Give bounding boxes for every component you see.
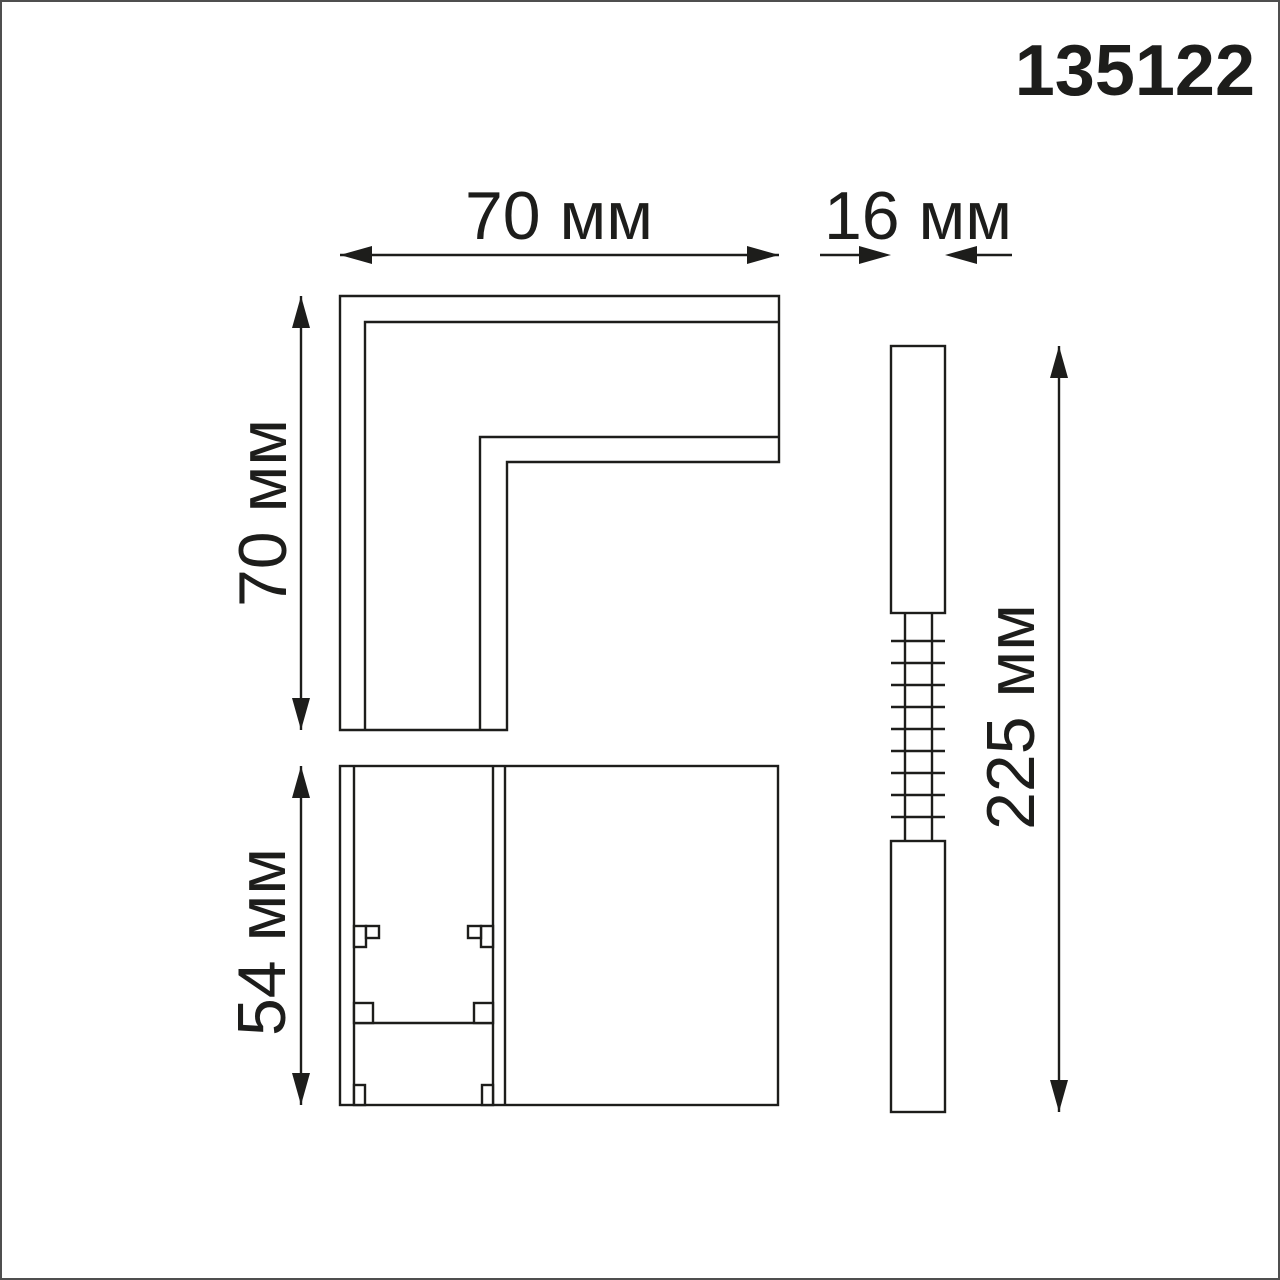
foot-left bbox=[354, 1085, 365, 1105]
arrow-up-icon bbox=[1050, 346, 1068, 378]
dimension-side-width: 16 мм bbox=[820, 178, 1012, 264]
dimension-top-width: 70 мм bbox=[340, 178, 779, 264]
dimension-top-width-label: 70 мм bbox=[465, 178, 653, 254]
dimension-front-height-label: 54 мм bbox=[224, 848, 300, 1036]
technical-drawing: 135122 bbox=[2, 2, 1280, 1280]
front-view-outline bbox=[340, 766, 778, 1105]
dimension-side-height-label: 225 мм bbox=[973, 604, 1049, 830]
clip-right-small bbox=[468, 926, 481, 938]
side-view-ribs bbox=[891, 641, 945, 817]
arrow-up-icon bbox=[292, 766, 310, 798]
dimension-front-height: 54 мм bbox=[224, 766, 310, 1105]
arrow-left-icon bbox=[340, 246, 372, 264]
arrow-down-icon bbox=[1050, 1080, 1068, 1112]
l-connector-inner-line-inner bbox=[480, 437, 779, 730]
arrow-down-icon bbox=[292, 698, 310, 730]
clip-left-large bbox=[354, 926, 366, 947]
dimension-side-height: 225 мм bbox=[973, 346, 1068, 1112]
foot-right bbox=[482, 1085, 493, 1105]
dimension-left-height: 70 мм bbox=[225, 296, 310, 730]
product-code: 135122 bbox=[1015, 31, 1255, 111]
clip-right-large bbox=[481, 926, 493, 947]
side-view-connector bbox=[891, 346, 945, 1112]
tab-left bbox=[354, 1003, 373, 1023]
l-connector-outer-outline bbox=[340, 296, 779, 730]
l-connector-inner-line-outer bbox=[365, 322, 779, 730]
side-view-lower-body bbox=[891, 841, 945, 1112]
arrow-up-icon bbox=[292, 296, 310, 328]
clip-left-small bbox=[366, 926, 379, 938]
front-view-connector bbox=[340, 766, 778, 1105]
dimension-side-width-label: 16 мм bbox=[824, 178, 1012, 254]
side-view-upper-body bbox=[891, 346, 945, 613]
dimension-left-height-label: 70 мм bbox=[225, 419, 301, 607]
drawing-canvas: 135122 bbox=[0, 0, 1280, 1280]
arrow-down-icon bbox=[292, 1073, 310, 1105]
top-view-l-connector bbox=[340, 296, 779, 730]
arrow-right-icon bbox=[747, 246, 779, 264]
tab-right bbox=[474, 1003, 493, 1023]
